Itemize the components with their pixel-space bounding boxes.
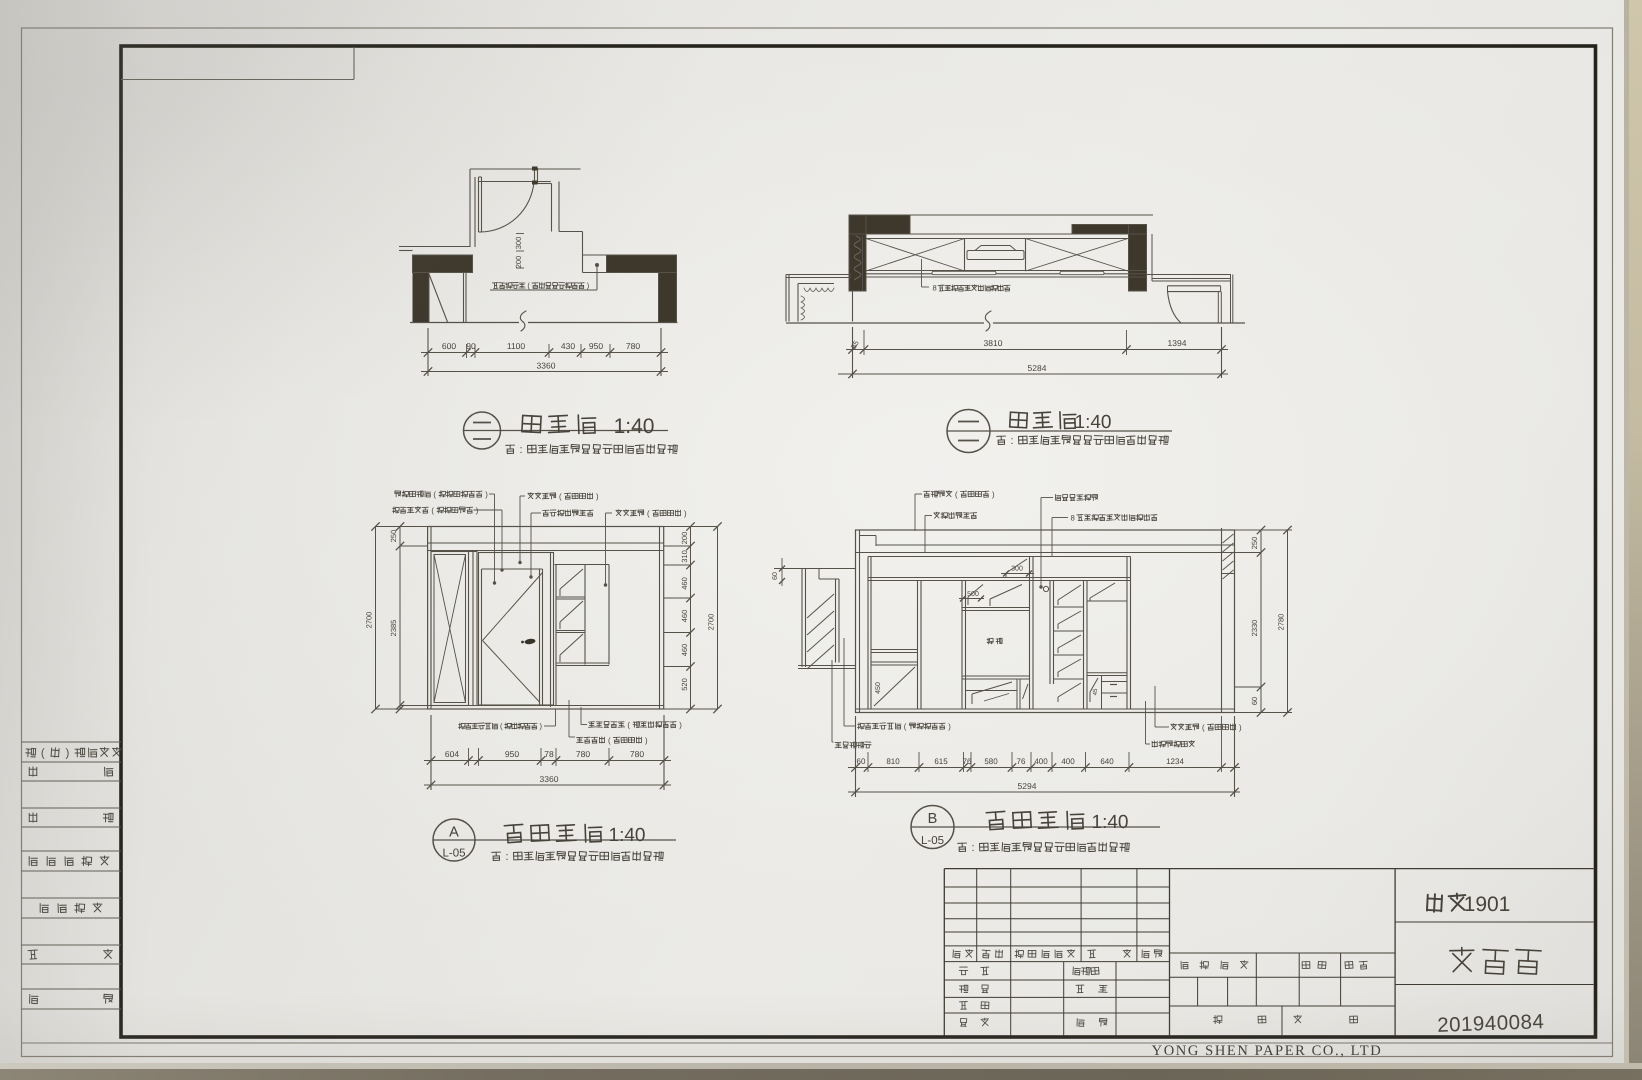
svg-text::: : — [1011, 435, 1014, 447]
svg-text:450: 450 — [875, 682, 882, 694]
svg-text:(: ( — [500, 722, 503, 731]
svg-text:640: 640 — [1100, 757, 1114, 766]
svg-text:1394: 1394 — [1168, 338, 1187, 348]
svg-text:810: 810 — [886, 757, 900, 766]
svg-text:500: 500 — [967, 591, 979, 598]
svg-text:76: 76 — [1017, 757, 1026, 766]
svg-text:1:40: 1:40 — [1092, 812, 1129, 833]
svg-text:5284: 5284 — [1028, 363, 1047, 373]
svg-text:1901: 1901 — [1464, 893, 1511, 916]
svg-text:): ) — [645, 736, 648, 745]
svg-text:250: 250 — [389, 530, 398, 543]
svg-text:A: A — [449, 825, 459, 841]
svg-text:400: 400 — [1061, 757, 1075, 766]
svg-text:3360: 3360 — [540, 774, 559, 784]
svg-text:780: 780 — [576, 749, 590, 759]
svg-text:460: 460 — [680, 610, 689, 623]
svg-text:400: 400 — [1034, 757, 1048, 766]
svg-text:60: 60 — [772, 572, 779, 580]
svg-text:): ) — [485, 490, 488, 499]
svg-text:8: 8 — [1071, 513, 1075, 522]
svg-text:310: 310 — [680, 550, 689, 563]
svg-text:3810: 3810 — [984, 338, 1003, 348]
svg-text:L-05: L-05 — [921, 835, 944, 847]
svg-text:1:40: 1:40 — [609, 825, 646, 846]
svg-text:(: ( — [647, 509, 650, 518]
svg-text:): ) — [684, 509, 687, 518]
svg-text:): ) — [1239, 723, 1242, 732]
svg-text:2700: 2700 — [365, 612, 374, 629]
svg-text:): ) — [596, 492, 599, 501]
svg-text:78: 78 — [544, 749, 554, 759]
svg-text:2385: 2385 — [389, 620, 398, 637]
svg-text:1234: 1234 — [1166, 757, 1184, 766]
svg-text:460: 460 — [680, 644, 689, 657]
svg-text:580: 580 — [984, 757, 998, 766]
svg-text:2700: 2700 — [707, 614, 716, 631]
svg-text:780: 780 — [630, 749, 644, 759]
svg-text:L-05: L-05 — [442, 848, 465, 860]
svg-text:300: 300 — [1011, 566, 1023, 573]
svg-text:(: ( — [1202, 723, 1205, 732]
svg-text::: : — [972, 842, 975, 854]
svg-text:1:40: 1:40 — [1075, 412, 1112, 433]
svg-text:460: 460 — [680, 577, 689, 590]
svg-text:(: ( — [431, 506, 434, 515]
svg-text:(: ( — [433, 490, 436, 499]
svg-text:85: 85 — [849, 339, 861, 351]
svg-text:5294: 5294 — [1018, 781, 1037, 791]
svg-text:): ) — [679, 720, 682, 729]
svg-text:615: 615 — [934, 757, 948, 766]
svg-text:45: 45 — [1092, 688, 1099, 695]
svg-text:(: ( — [608, 736, 611, 745]
svg-text:60: 60 — [857, 757, 866, 766]
svg-text:): ) — [476, 506, 479, 515]
svg-text:): ) — [948, 722, 951, 731]
svg-text:(: ( — [627, 720, 630, 729]
svg-text:(: ( — [559, 492, 562, 501]
svg-text::: : — [520, 444, 523, 456]
svg-text:520: 520 — [680, 678, 689, 691]
svg-text:76: 76 — [963, 757, 972, 766]
svg-text:950: 950 — [505, 749, 519, 759]
svg-text:(: ( — [904, 722, 907, 731]
svg-text:60: 60 — [1250, 697, 1259, 705]
svg-text:B: B — [928, 811, 938, 827]
svg-text:2330: 2330 — [1250, 620, 1259, 637]
svg-text:8: 8 — [932, 284, 936, 293]
svg-text:250: 250 — [1250, 537, 1259, 550]
svg-text:200: 200 — [680, 532, 689, 545]
svg-text:(: ( — [955, 490, 958, 499]
svg-text:604: 604 — [445, 749, 459, 759]
svg-text:2780: 2780 — [1277, 614, 1286, 631]
svg-text::: : — [506, 851, 509, 863]
svg-text:): ) — [992, 490, 995, 499]
svg-text:): ) — [540, 722, 543, 731]
